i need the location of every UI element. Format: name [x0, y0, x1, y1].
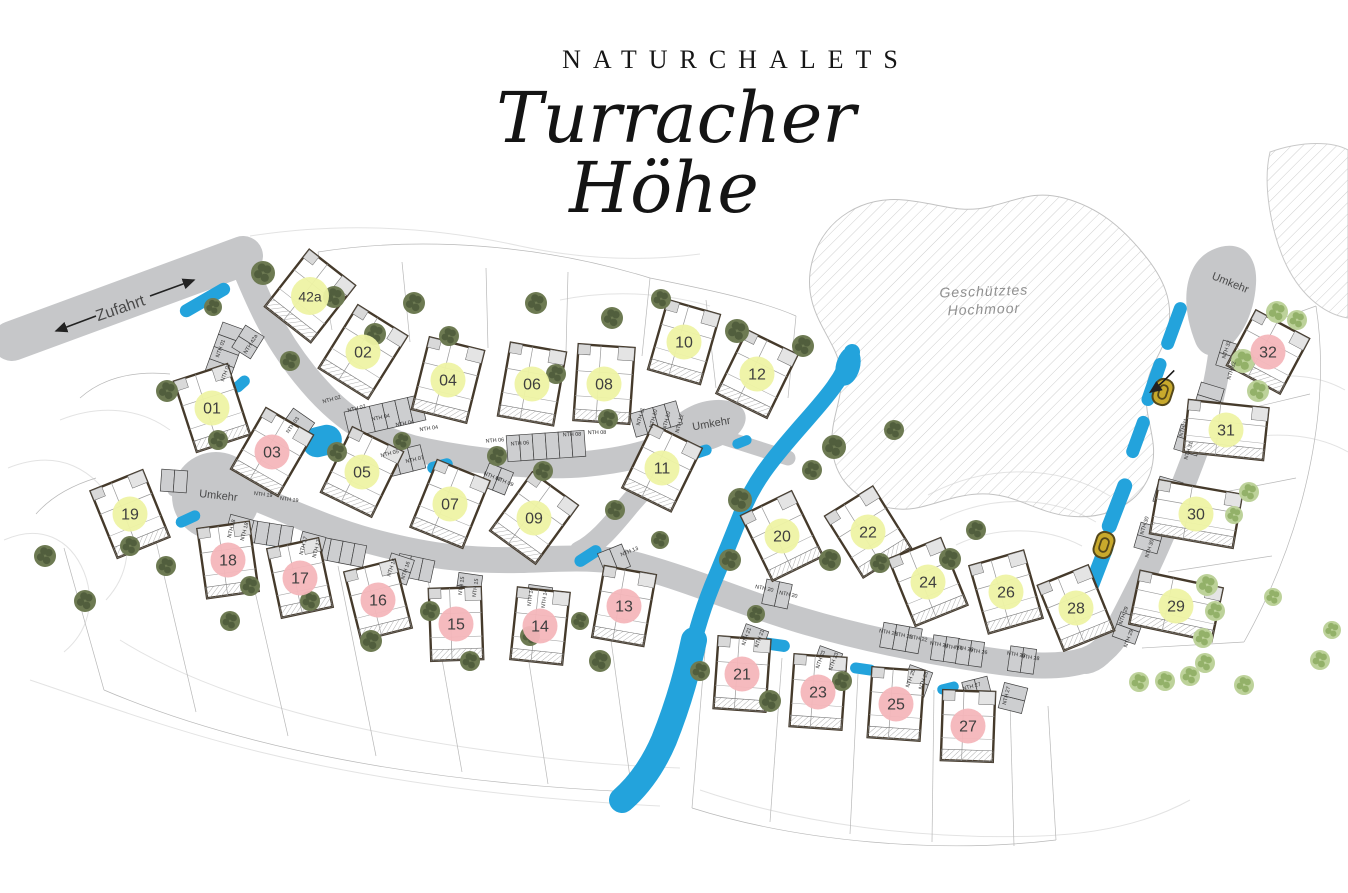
tree-icon: [601, 307, 623, 329]
lot-number: 16: [369, 593, 387, 610]
lot-number: 01: [203, 401, 221, 418]
tree-icon: [220, 611, 240, 631]
site-plan-svg: Geschütztes Hochmoor 42a0102030405060708…: [0, 0, 1348, 893]
tree-icon: [690, 661, 710, 681]
tree-icon: [571, 612, 589, 630]
title-kicker: NATURCHALETS: [562, 45, 910, 74]
lot-badge-04[interactable]: 04: [431, 363, 466, 398]
lot-badge-09[interactable]: 09: [517, 501, 552, 536]
tree-icon: [651, 531, 669, 549]
lot-badge-23[interactable]: 23: [801, 675, 836, 710]
tree-icon: [533, 461, 553, 481]
tree-icon: [34, 545, 56, 567]
tree-icon: [759, 690, 781, 712]
tree-icon: [1247, 380, 1269, 402]
tree-icon: [1129, 672, 1149, 692]
tree-icon: [1205, 601, 1225, 621]
tree-icon: [120, 536, 140, 556]
lot-badge-28[interactable]: 28: [1059, 591, 1094, 626]
lot-number: 19: [121, 507, 139, 524]
tree-icon: [251, 261, 275, 285]
tree-icon: [487, 446, 507, 466]
lot-badge-17[interactable]: 17: [283, 561, 318, 596]
lot-number: 10: [675, 335, 693, 352]
lot-badge-18[interactable]: 18: [211, 543, 246, 578]
lot-badge-26[interactable]: 26: [989, 575, 1024, 610]
lot-badge-11[interactable]: 11: [645, 451, 680, 486]
lot-badge-24[interactable]: 24: [911, 565, 946, 600]
tree-icon: [156, 556, 176, 576]
lot-badge-32[interactable]: 32: [1251, 335, 1286, 370]
tree-icon: [589, 650, 611, 672]
parking-bay: [545, 432, 560, 459]
lot-number: 12: [748, 367, 766, 384]
lot-badge-30[interactable]: 30: [1179, 497, 1214, 532]
moor-label-line1: Geschütztes: [939, 281, 1028, 300]
lot-number: 17: [291, 571, 309, 588]
title-script-line2: Höhe: [567, 147, 759, 229]
tree-icon: [651, 289, 671, 309]
tree-icon: [208, 430, 228, 450]
lot-badge-08[interactable]: 08: [587, 367, 622, 402]
lot-number: 05: [353, 465, 371, 482]
lot-number: 21: [733, 667, 751, 684]
tree-icon: [1234, 675, 1254, 695]
parking-bay: [160, 469, 175, 492]
parking-bay: [532, 433, 547, 460]
tree-icon: [605, 500, 625, 520]
tree-icon: [792, 335, 814, 357]
lot-number: 42a: [298, 289, 322, 305]
lot-number: 06: [523, 377, 541, 394]
tree-icon: [460, 651, 480, 671]
tree-icon: [1264, 588, 1282, 606]
culvert-marker-icon: [1091, 530, 1116, 560]
tree-icon: [819, 549, 841, 571]
lot-badge-27[interactable]: 27: [951, 709, 986, 744]
tree-icon: [1310, 650, 1330, 670]
tree-icon: [598, 409, 618, 429]
lot-number: 24: [919, 575, 937, 592]
lot-number: 15: [447, 617, 465, 634]
lot-badge-07[interactable]: 07: [433, 487, 468, 522]
lot-number: 20: [773, 529, 791, 546]
lot-number: 08: [595, 377, 613, 394]
tree-icon: [725, 319, 749, 343]
lot-number: 31: [1217, 423, 1235, 440]
lot-badge-02[interactable]: 02: [346, 335, 381, 370]
tree-icon: [966, 520, 986, 540]
lot-number: 26: [997, 585, 1015, 602]
lot-badge-14[interactable]: 14: [523, 609, 558, 644]
lot-number: 25: [887, 697, 905, 714]
tree-icon: [802, 460, 822, 480]
tree-icon: [327, 442, 347, 462]
tree-icon: [1287, 310, 1307, 330]
title-block: NATURCHALETS Turracher Höhe: [496, 45, 910, 229]
nth-label: NTH 08: [563, 432, 582, 439]
terrace: [941, 749, 993, 762]
lot-badge-19[interactable]: 19: [113, 497, 148, 532]
lot-number: 03: [263, 445, 281, 462]
tree-icon: [280, 351, 300, 371]
lot-number: 18: [219, 553, 237, 570]
nth-label: NTH 04: [419, 425, 438, 434]
parking-row: [160, 469, 187, 493]
tree-icon: [403, 292, 425, 314]
lot-number: 22: [859, 525, 877, 542]
lot-badge-25[interactable]: 25: [879, 687, 914, 722]
tree-icon: [1225, 506, 1243, 524]
parking-bay: [506, 435, 521, 462]
lot-badge-15[interactable]: 15: [439, 607, 474, 642]
lot-badge-31[interactable]: 31: [1209, 413, 1244, 448]
tree-icon: [240, 576, 260, 596]
tree-icon: [719, 549, 741, 571]
lot-badge-12[interactable]: 12: [740, 357, 775, 392]
lot-number: 04: [439, 373, 457, 390]
lot-number: 29: [1167, 599, 1185, 616]
tree-icon: [939, 548, 961, 570]
lot-badge-42a[interactable]: 42a: [291, 277, 329, 315]
tree-icon: [728, 488, 752, 512]
tree-icon: [1195, 653, 1215, 673]
tree-icon: [74, 590, 96, 612]
tree-icon: [870, 553, 890, 573]
tree-icon: [1323, 621, 1341, 639]
lot-badge-29[interactable]: 29: [1159, 589, 1194, 624]
lot-number: 07: [441, 497, 459, 514]
lot-number: 09: [525, 511, 543, 528]
lot-badge-03[interactable]: 03: [255, 435, 290, 470]
lot-badge-01[interactable]: 01: [195, 391, 230, 426]
lot-number: 13: [615, 599, 633, 616]
lot-badge-21[interactable]: 21: [725, 657, 760, 692]
lot-badge-05[interactable]: 05: [345, 455, 380, 490]
lot-number: 14: [531, 619, 549, 636]
lot-number: 23: [809, 685, 827, 702]
lot-number: 30: [1187, 507, 1205, 524]
tree-icon: [747, 605, 765, 623]
tree-icon: [420, 601, 440, 621]
tree-icon: [156, 380, 178, 402]
nth-label: NTH 08: [588, 430, 607, 436]
lot-number: 11: [654, 461, 671, 478]
parking-bay: [173, 470, 188, 493]
tree-icon: [439, 326, 459, 346]
tree-icon: [884, 420, 904, 440]
tree-icon: [1155, 671, 1175, 691]
tree-icon: [525, 292, 547, 314]
lot-number: 28: [1067, 601, 1085, 618]
moor-label-line2: Hochmoor: [947, 300, 1020, 319]
lot-badge-20[interactable]: 20: [765, 519, 800, 554]
lot-number: 02: [354, 345, 372, 362]
tree-icon: [1239, 482, 1259, 502]
parking-bay: [519, 434, 534, 461]
lot-badge-22[interactable]: 22: [851, 515, 886, 550]
lot-number: 27: [959, 719, 977, 736]
tree-icon: [1266, 301, 1288, 323]
lot-badge-06[interactable]: 06: [515, 367, 550, 402]
tree-icon: [360, 630, 382, 652]
tree-icon: [204, 298, 222, 316]
lot-badge-13[interactable]: 13: [607, 589, 642, 624]
tree-icon: [1193, 628, 1213, 648]
lot-number: 32: [1259, 345, 1277, 362]
nth-label: NTH 06: [485, 437, 504, 445]
tree-icon: [822, 435, 846, 459]
tree-icon: [1196, 574, 1218, 596]
lot-badge-10[interactable]: 10: [667, 325, 702, 360]
tree-icon: [393, 432, 411, 450]
lot-badge-16[interactable]: 16: [361, 583, 396, 618]
site-plan-page: Geschütztes Hochmoor 42a0102030405060708…: [0, 0, 1348, 893]
